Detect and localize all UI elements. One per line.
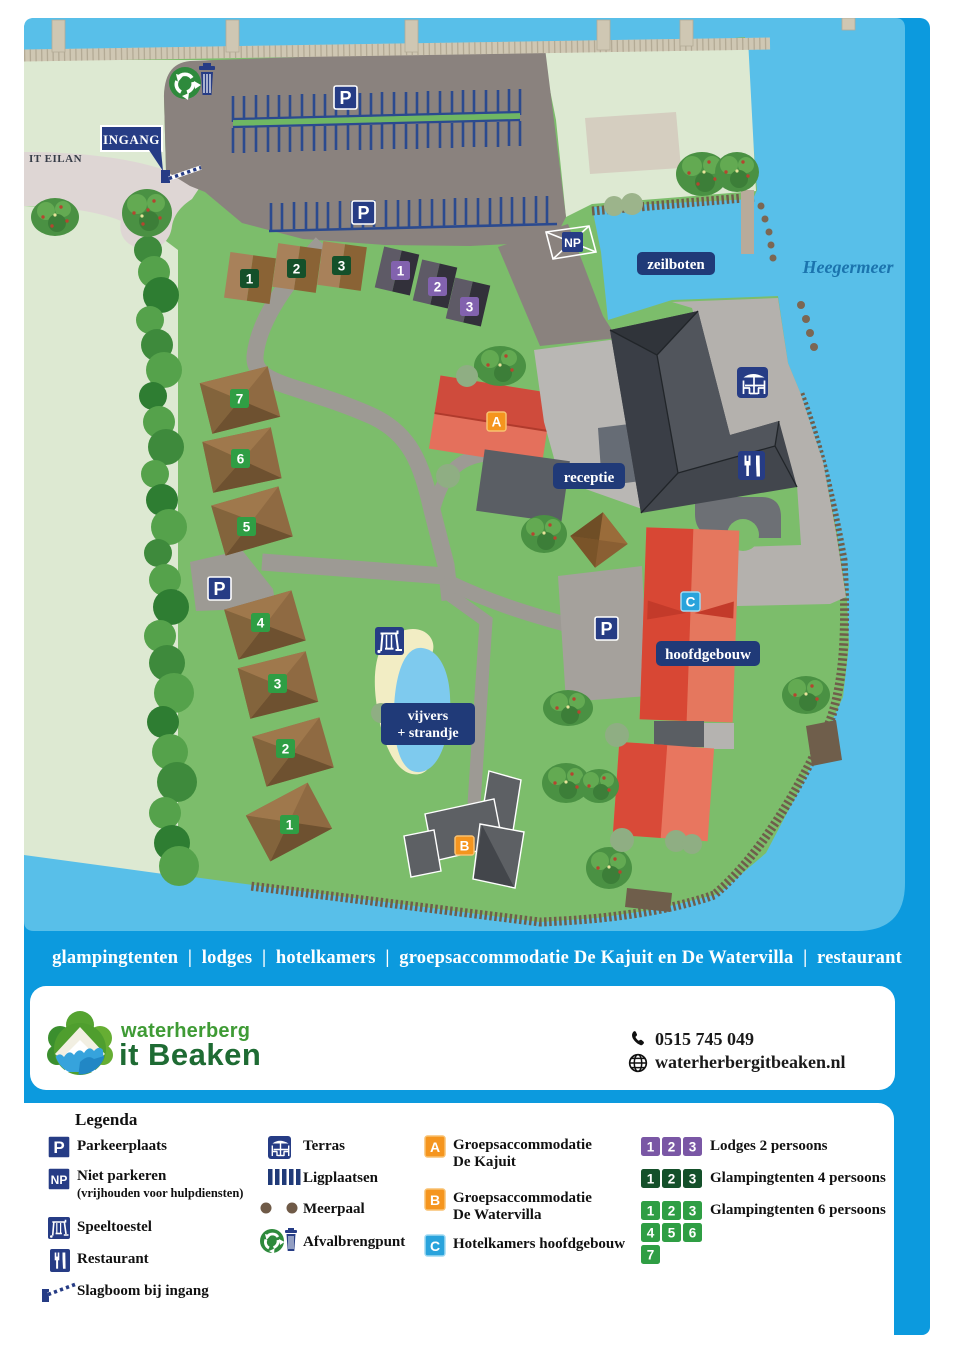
svg-text:1: 1	[647, 1172, 655, 1187]
svg-text:3: 3	[466, 300, 474, 315]
svg-text:A: A	[492, 415, 502, 430]
svg-text:3: 3	[338, 259, 346, 274]
svg-text:3: 3	[689, 1172, 697, 1187]
svg-text:IT EILAN: IT EILAN	[29, 153, 82, 165]
svg-text:P: P	[53, 1138, 64, 1157]
svg-text:receptie: receptie	[564, 470, 615, 486]
svg-text:1: 1	[397, 264, 405, 279]
svg-text:P: P	[600, 619, 612, 639]
svg-text:1: 1	[286, 818, 294, 833]
svg-text:INGANG: INGANG	[103, 132, 160, 147]
svg-text:B: B	[460, 839, 470, 854]
svg-text:2: 2	[434, 280, 442, 295]
svg-text:Heegermeer: Heegermeer	[802, 257, 895, 277]
svg-text:C: C	[686, 595, 696, 610]
svg-text:3: 3	[689, 1204, 697, 1219]
svg-text:4: 4	[257, 616, 265, 631]
svg-text:2: 2	[668, 1172, 676, 1187]
svg-text:hoofdgebouw: hoofdgebouw	[665, 647, 751, 663]
svg-text:7: 7	[236, 392, 244, 407]
svg-text:P: P	[357, 203, 369, 223]
svg-text:2: 2	[282, 742, 290, 757]
svg-text:1: 1	[246, 272, 254, 287]
svg-text:P: P	[339, 88, 351, 108]
svg-text:vijvers: vijvers	[408, 709, 449, 724]
svg-text:3: 3	[689, 1140, 697, 1155]
svg-text:zeilboten: zeilboten	[647, 257, 705, 273]
svg-text:NP: NP	[564, 236, 581, 250]
svg-text:6: 6	[237, 452, 245, 467]
svg-text:+ strandje: + strandje	[397, 726, 458, 741]
svg-text:3: 3	[274, 677, 282, 692]
svg-text:5: 5	[243, 520, 251, 535]
svg-text:NP: NP	[51, 1173, 68, 1187]
svg-text:2: 2	[293, 262, 301, 277]
svg-text:P: P	[213, 579, 225, 599]
